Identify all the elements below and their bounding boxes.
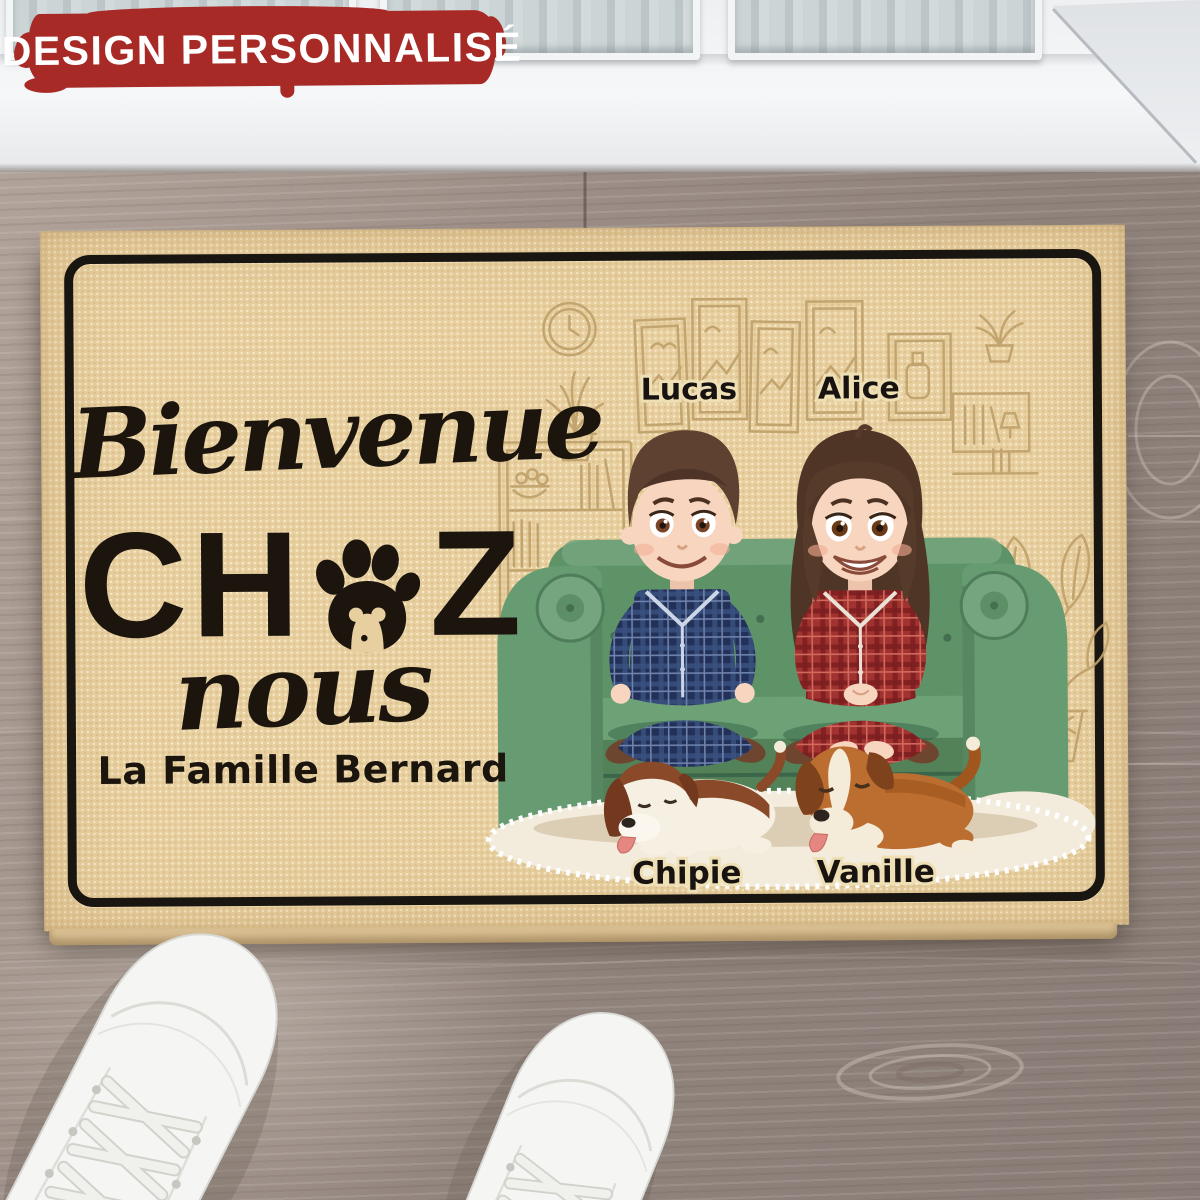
personalized-design-badge: DESIGN PERSONNALISÉ — [28, 10, 497, 88]
fluffy-rug — [488, 789, 1096, 889]
mat-word-bienvenue: Bienvenue — [69, 378, 533, 493]
label-person-2: Alice — [818, 371, 900, 406]
chez-letter-right: Z — [429, 516, 525, 649]
doormat: Lucas Alice Chipie Vanille Bienvenue CH — [40, 225, 1129, 932]
badge-label: DESIGN PERSONNALISÉ — [28, 10, 497, 88]
clock-line-art — [543, 303, 595, 355]
sneaker-left — [0, 918, 311, 1200]
label-pet-1: Chipie — [632, 855, 742, 892]
picture-frames-line-art — [634, 298, 863, 433]
label-person-1: Lucas — [641, 372, 738, 408]
product-photo: Lucas Alice Chipie Vanille Bienvenue CH — [0, 0, 1200, 1200]
mat-word-nous: nous — [71, 630, 535, 749]
mat-text-block: Bienvenue CH — [70, 228, 534, 931]
mat-family-name: La Famille Bernard — [73, 748, 533, 793]
door-glass-panel — [728, 0, 1042, 60]
wall-shelf-line-art — [888, 311, 1037, 474]
white-sneakers — [0, 918, 780, 1200]
label-pet-2: Vanille — [817, 854, 935, 891]
